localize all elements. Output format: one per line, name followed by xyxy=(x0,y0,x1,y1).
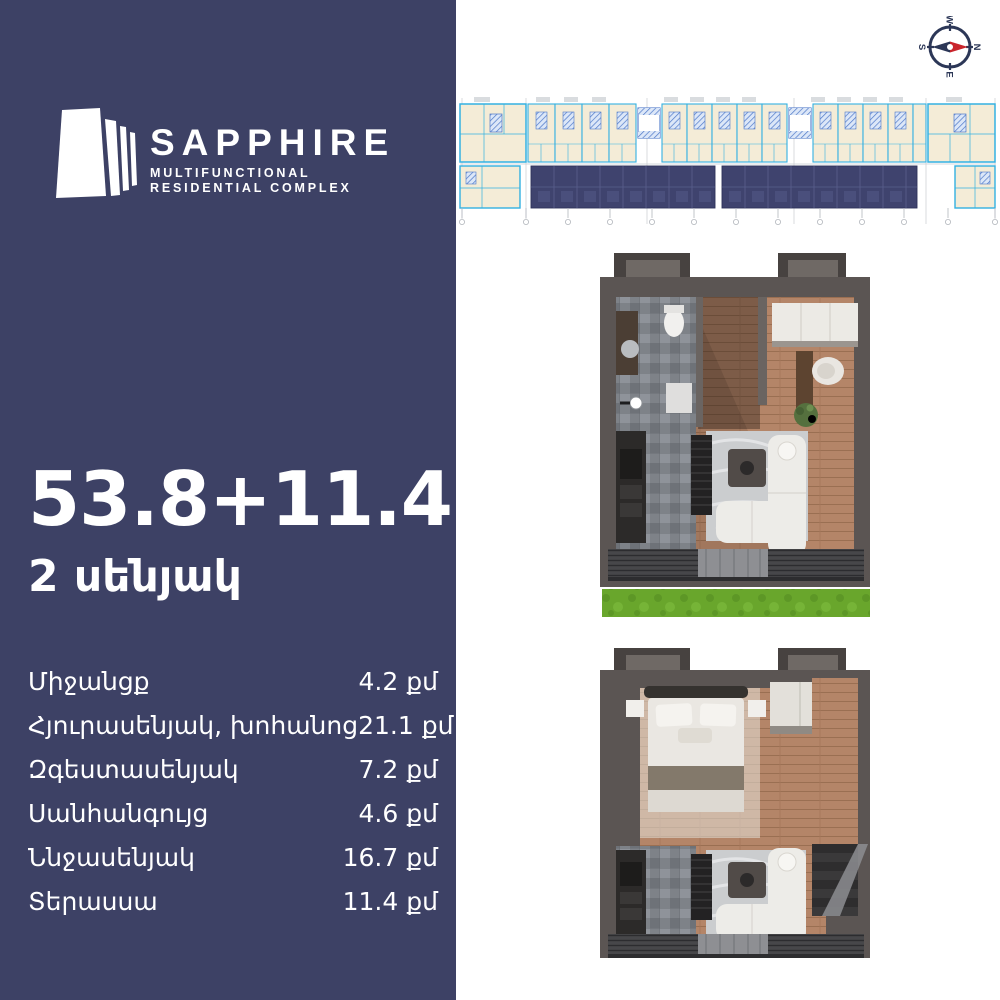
compass-north-label: N xyxy=(971,44,981,51)
room-row-bathroom: Սանհանգույց 4.6 քմ xyxy=(28,792,438,836)
room-label: Ննջասենյակ xyxy=(28,836,195,880)
room-row-terrace: Տերասսա 11.4 քմ xyxy=(28,880,438,924)
toilet xyxy=(664,309,684,337)
mirror xyxy=(621,340,639,358)
room-area-list: Միջանցք 4.2 քմ Հյուրասենյակ, խոհանոց 21.… xyxy=(28,660,438,924)
room-area-value: 11.4 քմ xyxy=(343,880,438,924)
plan-highlight-block-2 xyxy=(722,166,917,208)
apartment-3d-plan-level-2 xyxy=(600,648,872,962)
nightstand-right xyxy=(748,700,766,717)
compass-east-label: E xyxy=(944,71,955,77)
room-row-bedroom: Ննջասենյակ 16.7 քմ xyxy=(28,836,438,880)
area-block: 53.8+11.4 քմ 2 սենյակ xyxy=(28,462,438,602)
desk-chair xyxy=(812,357,844,385)
room-area-value: 21.1 քմ xyxy=(358,704,453,748)
plan-highlight-block-1 xyxy=(531,166,715,208)
room-row-dressing-room: Զգեստասենյակ 7.2 քմ xyxy=(28,748,438,792)
apartment-3d-plan-level-1 xyxy=(600,253,872,617)
coffee-table xyxy=(728,862,766,898)
window-console xyxy=(772,303,858,347)
shower xyxy=(666,383,692,413)
rooms-count-label: 2 սենյակ xyxy=(28,551,438,602)
room-label: Տերասսա xyxy=(28,880,158,924)
grass-strip xyxy=(602,589,870,617)
room-area-value: 4.2 քմ xyxy=(359,660,438,704)
plan-axis-ticks xyxy=(459,208,997,225)
info-panel: SAPPHIRE MULTIFUNCTIONAL RESIDENTIAL COM… xyxy=(0,0,456,1000)
room-row-livingroom-kitchen: Հյուրասենյակ, խոհանոց 21.1 քմ xyxy=(28,704,438,748)
plan-bottom-units xyxy=(460,166,995,208)
room-label: Հյուրասենյակ, խոհանոց xyxy=(28,704,358,748)
bathroom xyxy=(616,297,696,427)
coffee-table xyxy=(728,449,766,487)
compass-south-label: S xyxy=(919,44,927,50)
compass-icon: N S W E xyxy=(919,16,981,78)
brand-name: SAPPHIRE xyxy=(150,124,395,162)
terrace-deck xyxy=(608,934,864,958)
brand-tagline-line1: MULTIFUNCTIONAL xyxy=(150,166,395,181)
room-label: Միջանցք xyxy=(28,660,150,704)
radiator xyxy=(691,854,712,920)
radiator xyxy=(691,435,712,515)
room-area-value: 7.2 քմ xyxy=(359,748,438,792)
brand-logo-mark-icon xyxy=(56,106,140,201)
kitchen xyxy=(616,846,696,938)
area-value: 53.8+11.4 xyxy=(28,462,452,537)
plan-balconies xyxy=(474,97,962,102)
brand-tagline-line2: RESIDENTIAL COMPLEX xyxy=(150,181,395,196)
area-headline: 53.8+11.4 քմ xyxy=(28,462,438,537)
terrace-deck xyxy=(608,549,864,581)
room-label: Զգեստասենյակ xyxy=(28,748,239,792)
room-area-value: 4.6 քմ xyxy=(359,792,438,836)
kitchen xyxy=(616,427,696,549)
building-floor-plan xyxy=(458,96,998,230)
room-area-value: 16.7 քմ xyxy=(343,836,438,880)
flyer-canvas: SAPPHIRE MULTIFUNCTIONAL RESIDENTIAL COM… xyxy=(0,0,1000,1000)
interior-wall xyxy=(758,297,767,405)
brand-logo: SAPPHIRE MULTIFUNCTIONAL RESIDENTIAL COM… xyxy=(56,106,386,201)
plant xyxy=(794,403,818,427)
plan-top-units xyxy=(460,104,995,162)
area-unit: քմ xyxy=(464,489,516,535)
bed xyxy=(644,686,748,812)
room-label: Սանհանգույց xyxy=(28,792,208,836)
nightstand-left xyxy=(626,700,644,717)
room-row-corridor: Միջանցք 4.2 քմ xyxy=(28,660,438,704)
sink xyxy=(630,397,642,409)
compass-west-label: W xyxy=(944,16,955,24)
desk xyxy=(796,351,813,409)
interior-wall xyxy=(696,297,703,427)
